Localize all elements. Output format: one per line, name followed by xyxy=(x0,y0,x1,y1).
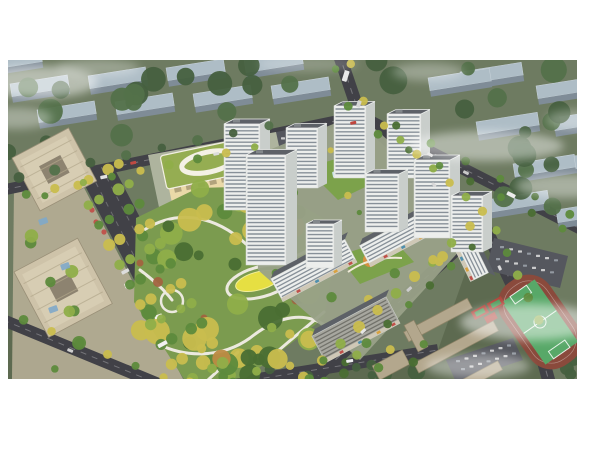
residential-tower xyxy=(334,102,375,179)
street-tree xyxy=(50,184,59,193)
park-tree xyxy=(229,232,242,245)
street-tree xyxy=(462,193,471,202)
street-tree xyxy=(134,199,144,209)
street-tree xyxy=(145,319,157,331)
background-tree xyxy=(544,156,560,172)
aerial-rendering xyxy=(8,60,577,379)
street-tree xyxy=(125,280,135,290)
street-tree xyxy=(251,143,258,150)
street-tree xyxy=(217,357,229,369)
street-tree xyxy=(478,207,487,216)
street-tree xyxy=(380,122,388,130)
background-tree xyxy=(207,71,232,96)
street-tree xyxy=(166,359,177,370)
park-tree xyxy=(191,179,209,197)
background-tree xyxy=(217,102,236,121)
roof-unit xyxy=(396,110,403,113)
park-tree xyxy=(227,293,248,314)
site-tree xyxy=(357,210,362,215)
parked-car xyxy=(550,271,554,273)
site-tree xyxy=(344,192,351,199)
street-tree xyxy=(105,215,114,224)
tower-side xyxy=(483,192,492,253)
street-tree xyxy=(335,339,345,349)
parked-car xyxy=(499,347,503,349)
street-tree xyxy=(186,298,196,308)
street-tree xyxy=(114,234,125,245)
tower-side xyxy=(399,170,408,233)
park-tree xyxy=(285,329,294,338)
street-tree xyxy=(222,148,231,157)
residential-tower xyxy=(365,170,408,233)
background-tree xyxy=(455,99,474,118)
parked-car xyxy=(536,255,540,257)
street-tree xyxy=(108,173,116,181)
street-tree xyxy=(496,175,504,183)
street-tree xyxy=(374,130,383,139)
roof-unit xyxy=(374,170,381,173)
plaza-tree xyxy=(45,277,55,287)
street-tree xyxy=(123,204,134,215)
street-tree xyxy=(114,159,124,169)
street-tree xyxy=(135,274,146,285)
parked-car xyxy=(518,250,522,252)
street-tree xyxy=(445,178,453,186)
roof-unit xyxy=(294,124,301,127)
street-tree xyxy=(166,333,177,344)
street-tree xyxy=(391,288,402,299)
street-tree xyxy=(121,150,131,160)
residential-tower xyxy=(306,220,342,268)
background-tree xyxy=(110,124,133,147)
park-tree xyxy=(275,302,290,317)
background-tree xyxy=(242,75,262,95)
park-flowerbed xyxy=(153,277,163,287)
street-tree xyxy=(165,258,176,269)
parked-car xyxy=(505,260,509,262)
street-tree xyxy=(157,314,166,323)
street-tree xyxy=(193,154,202,163)
residential-tower xyxy=(246,150,297,266)
street-tree xyxy=(155,238,166,249)
street-tree xyxy=(420,340,428,348)
background-tree xyxy=(352,363,361,372)
street-tree xyxy=(94,195,104,205)
street-tree xyxy=(466,177,474,185)
street-tree xyxy=(185,323,197,335)
street-tree xyxy=(374,363,383,372)
street-tree xyxy=(523,293,533,303)
street-tree xyxy=(49,165,60,176)
cloud-wisp xyxy=(408,131,564,161)
background-tree xyxy=(177,68,195,86)
street-tree xyxy=(103,239,115,251)
tower-side xyxy=(366,102,375,179)
parked-car xyxy=(490,350,494,352)
street-tree xyxy=(386,345,395,354)
street-tree xyxy=(428,255,437,264)
street-tree xyxy=(144,244,155,255)
street-tree xyxy=(176,304,185,313)
park-tree xyxy=(162,220,174,232)
street-tree xyxy=(252,367,261,376)
background-tree xyxy=(281,76,298,93)
street-tree xyxy=(396,136,404,144)
street-tree xyxy=(469,244,476,251)
street-tree xyxy=(132,362,140,370)
park-tree xyxy=(178,208,202,232)
street-tree xyxy=(166,284,176,294)
park-tree xyxy=(229,258,242,271)
street-tree xyxy=(513,270,522,279)
street-tree xyxy=(75,338,84,347)
street-tree xyxy=(503,249,511,257)
street-tree xyxy=(14,172,25,183)
street-tree xyxy=(528,209,536,217)
street-tree xyxy=(113,183,125,195)
rendering-page xyxy=(0,0,600,450)
street-tree xyxy=(19,315,29,325)
plaza-flowerbed xyxy=(101,229,106,234)
park-tree xyxy=(174,242,193,261)
street-tree xyxy=(84,200,94,210)
cloud-wisp xyxy=(426,354,530,378)
park-tree xyxy=(241,349,257,365)
street-tree xyxy=(565,210,574,219)
parked-car xyxy=(514,262,518,264)
plaza-tree xyxy=(41,192,48,199)
street-tree xyxy=(559,225,567,233)
tower-side xyxy=(286,150,297,266)
street-tree xyxy=(103,350,112,359)
street-tree xyxy=(192,135,203,146)
background-tree xyxy=(141,67,166,92)
site-tree xyxy=(328,147,334,153)
street-tree xyxy=(125,179,134,188)
street-tree xyxy=(447,262,456,271)
street-tree xyxy=(392,121,400,129)
street-tree xyxy=(197,344,206,353)
roof-unit xyxy=(233,120,240,123)
street-tree xyxy=(94,220,103,229)
street-tree xyxy=(372,305,382,315)
street-tree xyxy=(145,218,155,228)
street-tree xyxy=(145,293,156,304)
street-tree xyxy=(339,368,349,378)
parked-car xyxy=(500,246,504,248)
street-tree xyxy=(362,338,372,348)
parked-car xyxy=(527,253,531,255)
street-tree xyxy=(436,162,444,170)
street-tree xyxy=(85,158,95,168)
plaza-tree xyxy=(64,306,75,317)
street-tree xyxy=(264,121,273,130)
plaza-tree xyxy=(25,229,38,242)
tower-side xyxy=(334,220,342,268)
street-tree xyxy=(409,357,418,366)
street-tree xyxy=(409,271,420,282)
street-tree xyxy=(155,264,164,273)
roof-unit xyxy=(313,220,320,223)
street-tree xyxy=(497,193,505,201)
parked-car xyxy=(281,137,285,139)
street-tree xyxy=(465,221,475,231)
parked-car xyxy=(523,265,527,267)
site-tree xyxy=(437,251,448,262)
street-tree xyxy=(383,320,392,329)
street-tree xyxy=(206,337,218,349)
park-tree xyxy=(267,323,276,332)
tower-side xyxy=(318,124,327,189)
street-tree xyxy=(176,353,188,365)
street-tree xyxy=(164,160,173,169)
site-tree xyxy=(326,292,336,302)
background-tree xyxy=(544,198,562,216)
aerial-rendering-frame xyxy=(8,60,577,379)
background-tree xyxy=(488,88,507,107)
street-tree xyxy=(135,299,146,310)
street-tree xyxy=(426,281,434,289)
street-tree xyxy=(196,318,207,329)
street-tree xyxy=(80,179,87,186)
street-tree xyxy=(344,102,353,111)
street-tree xyxy=(158,144,166,152)
street-tree xyxy=(405,301,412,308)
street-tree xyxy=(47,327,56,336)
park-tree xyxy=(267,349,287,369)
street-tree xyxy=(114,260,124,270)
park-tree xyxy=(194,250,204,260)
site-tree xyxy=(390,268,400,278)
roof-unit xyxy=(256,150,263,153)
street-tree xyxy=(134,224,144,234)
street-tree xyxy=(447,238,457,248)
park-flowerbed xyxy=(137,260,144,267)
cloud-wisp xyxy=(392,63,464,81)
street-tree xyxy=(286,362,294,370)
street-tree xyxy=(136,167,144,175)
street-tree xyxy=(207,364,217,374)
parked-car xyxy=(512,352,516,354)
parked-car xyxy=(554,259,558,261)
street-tree xyxy=(22,190,31,199)
street-tree xyxy=(319,356,327,364)
parked-car xyxy=(545,257,549,259)
street-tree xyxy=(229,129,237,137)
parked-car xyxy=(541,269,545,271)
street-tree xyxy=(352,350,361,359)
parked-car xyxy=(507,344,511,346)
background-tree xyxy=(110,88,133,111)
parked-car xyxy=(532,267,536,269)
street-tree xyxy=(176,278,187,289)
street-tree xyxy=(492,226,500,234)
street-tree xyxy=(125,254,135,264)
parked-car xyxy=(496,258,500,260)
plaza-tree xyxy=(51,365,59,373)
